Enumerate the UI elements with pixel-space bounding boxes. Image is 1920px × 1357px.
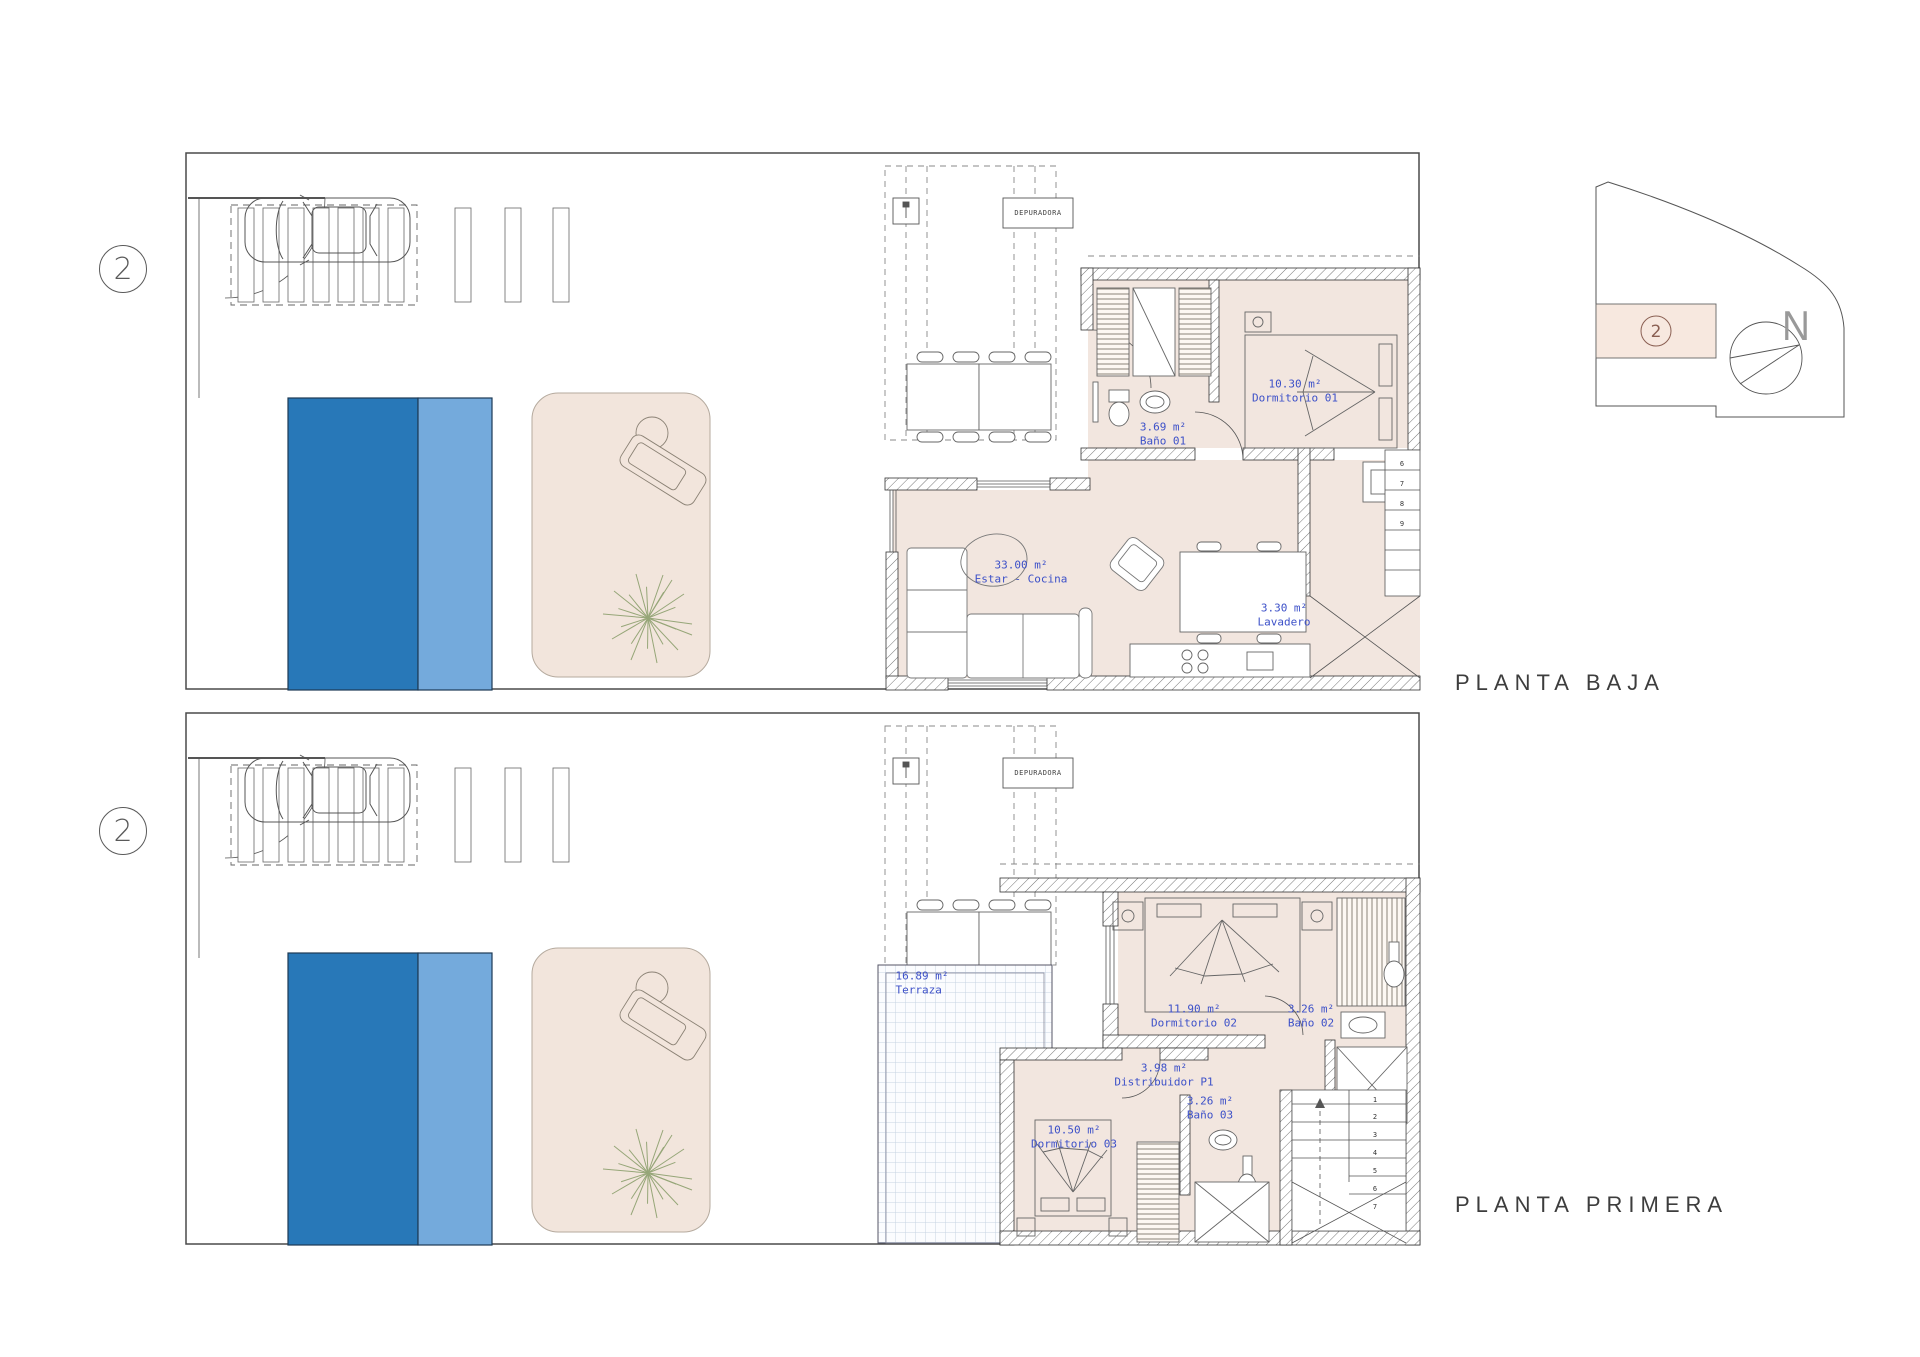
room-label-bano-01: 3.69 m² Baño 01 — [1140, 421, 1186, 450]
room-area: 3.26 m² — [1187, 1095, 1233, 1109]
room-area: 16.89 m² — [896, 970, 949, 984]
room-name: Dormitorio 01 — [1252, 392, 1338, 406]
site-outline — [1596, 182, 1844, 417]
unit-number-badge: 2 — [99, 807, 147, 855]
room-name: Terraza — [896, 984, 949, 998]
svg-text:5: 5 — [1373, 1167, 1377, 1175]
room-name: Baño 01 — [1140, 435, 1186, 449]
entry-gate-door — [188, 758, 325, 958]
room-label-dormitorio-01: 10.30 m² Dormitorio 01 — [1252, 378, 1338, 407]
svg-text:1: 1 — [1373, 1096, 1377, 1104]
equipment-label: DEPURADORA — [1014, 769, 1061, 777]
plan-planta-baja: 6 7 8 9 2 DEPURADORA 3.69 m² Baño 01 10.… — [185, 152, 1420, 690]
svg-text:3: 3 — [1373, 1131, 1377, 1139]
room-label-estar-cocina: 33.00 m² Estar - Cocina — [975, 559, 1068, 588]
room-area: 3.69 m² — [1140, 421, 1186, 435]
room-name: Lavadero — [1258, 616, 1311, 630]
svg-text:6: 6 — [1400, 460, 1404, 468]
svg-text:9: 9 — [1400, 520, 1404, 528]
room-name: Estar - Cocina — [975, 573, 1068, 587]
equipment-label: DEPURADORA — [1014, 209, 1061, 217]
unit-number-badge: 2 — [99, 245, 147, 293]
svg-text:6: 6 — [1373, 1185, 1377, 1193]
pool — [288, 953, 492, 1245]
room-label-distribuidor-p1: 3.98 m² Distribuidor P1 — [1114, 1062, 1213, 1091]
svg-text:8: 8 — [1400, 500, 1404, 508]
room-label-bano-03: 3.26 m² Baño 03 — [1187, 1095, 1233, 1124]
plan-title-baja: PLANTA BAJA — [1455, 670, 1665, 696]
room-label-dormitorio-03: 10.50 m² Dormitorio 03 — [1031, 1124, 1117, 1153]
plan-planta-primera: 1 2 3 4 5 6 7 2 DEPURADORA 16.89 m² Terr… — [185, 712, 1420, 1245]
pool — [288, 398, 492, 690]
svg-text:7: 7 — [1400, 480, 1404, 488]
room-area: 3.26 m² — [1288, 1003, 1334, 1017]
room-label-bano-02: 3.26 m² Baño 02 — [1288, 1003, 1334, 1032]
entry-gate-door — [188, 198, 325, 398]
floorplan-sheet: 6 7 8 9 2 DEPURADORA 3.69 m² Baño 01 10.… — [0, 0, 1920, 1357]
room-label-dormitorio-02: 11.90 m² Dormitorio 02 — [1151, 1003, 1237, 1032]
wardrobe — [1137, 1142, 1179, 1242]
plan-title-primera: PLANTA PRIMERA — [1455, 1192, 1728, 1218]
svg-text:2: 2 — [1373, 1113, 1377, 1121]
site-key: 2 N — [1588, 180, 1860, 428]
room-area: 10.30 m² — [1252, 378, 1338, 392]
house-ground-floor: 6 7 8 9 — [885, 268, 1420, 690]
unit-badge-number: 2 — [1651, 322, 1662, 342]
patio-deck — [532, 948, 710, 1232]
svg-text:4: 4 — [1373, 1149, 1377, 1157]
room-area: 11.90 m² — [1151, 1003, 1237, 1017]
parking-area — [231, 755, 569, 865]
room-name: Dormitorio 03 — [1031, 1138, 1117, 1152]
room-name: Dormitorio 02 — [1151, 1017, 1237, 1031]
svg-text:7: 7 — [1373, 1203, 1377, 1211]
room-area: 33.00 m² — [975, 559, 1068, 573]
north-label: N — [1782, 301, 1810, 349]
outdoor-dining-table — [907, 352, 1051, 442]
room-label-terraza: 16.89 m² Terraza — [896, 970, 949, 999]
staircase — [1292, 1090, 1406, 1243]
room-label-lavadero: 3.30 m² Lavadero — [1258, 602, 1311, 631]
room-area: 3.30 m² — [1258, 602, 1311, 616]
room-area: 10.50 m² — [1031, 1124, 1117, 1138]
room-name: Distribuidor P1 — [1114, 1076, 1213, 1090]
room-name: Baño 03 — [1187, 1109, 1233, 1123]
room-area: 3.98 m² — [1114, 1062, 1213, 1076]
patio-deck — [532, 393, 710, 677]
room-name: Baño 02 — [1288, 1017, 1334, 1031]
parking-area — [231, 195, 569, 305]
